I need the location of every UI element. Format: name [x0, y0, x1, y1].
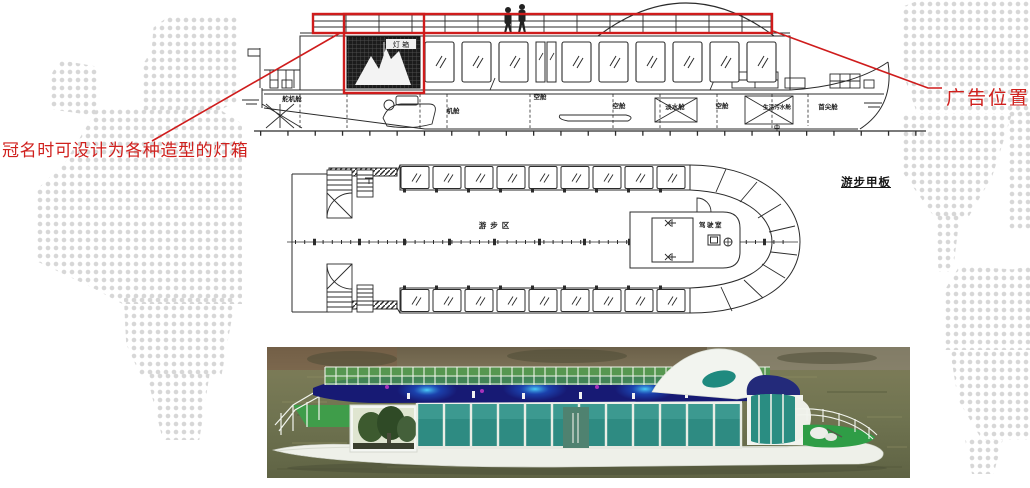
cabin-glass: [417, 398, 742, 449]
compartment-label: 生活污水舱: [763, 103, 791, 111]
wheelhouse-label: 驾驶室: [699, 220, 723, 229]
machinery: [383, 96, 793, 128]
centerline-mark: 中: [774, 124, 780, 132]
passenger-figures: [504, 4, 526, 33]
lightbox: 灯 箱: [347, 37, 420, 88]
world-map-dots: [114, 296, 236, 376]
compartment-labels: 舵机舱 机舱 空舱 空舱 淡水舱 空舱 生活污水舱 首尖舱 中: [282, 92, 838, 132]
compartment-label: 淡水舱: [664, 102, 685, 111]
world-map-dots: [960, 438, 1008, 474]
promenade-deck-label: 游步甲板: [841, 174, 891, 190]
slide-canvas: 灯 箱 舵机舱 机舱 空舱 空舱 淡水舱 空舱 生活污水舱 首尖舱 中: [0, 0, 1030, 488]
compartment-label: 首尖舱: [818, 102, 838, 111]
plan-window-wall-bottom: [400, 288, 690, 314]
world-map-dots: [50, 60, 98, 116]
cabin-windows: [425, 42, 776, 82]
boat-photo: [267, 347, 910, 478]
compartment-label: 空舱: [716, 101, 730, 110]
side-elevation-drawing: 灯 箱 舵机舱 机舱 空舱 空舱 淡水舱 空舱 生活污水舱 首尖舱 中: [240, 0, 930, 140]
lightbox-label: 灯 箱: [393, 40, 409, 49]
world-map-dots: [140, 372, 216, 440]
stern-led-screen: [350, 405, 417, 452]
compartment-label: 舵机舱: [282, 94, 302, 103]
world-map-dots: [1008, 110, 1030, 230]
stairs-top: [327, 170, 373, 218]
compartment-label: 机舱: [447, 106, 461, 115]
left-callout-text: 冠名时可设计为各种造型的灯箱: [2, 136, 248, 161]
wheelhouse: [630, 198, 740, 268]
world-map-dots: [950, 350, 1030, 440]
world-map-dots: [944, 266, 1030, 350]
plan-window-wall-top: [400, 165, 690, 191]
bow-dome-arch: [598, 3, 774, 36]
roof-railing: [313, 15, 772, 34]
right-callout-text: 广告位置: [946, 83, 1030, 110]
compartment-label: 空舱: [534, 92, 548, 101]
stairs-bottom: [327, 264, 373, 312]
world-map-dots: [936, 214, 960, 272]
deck-plan-drawing: 游步区 驾驶室: [285, 160, 810, 335]
stern-gear: [248, 48, 300, 88]
promenade-area-label: 游步区: [479, 220, 514, 230]
rudder-propeller: [262, 104, 302, 128]
compartment-label: 空舱: [613, 101, 627, 110]
world-map-dots: [142, 16, 238, 112]
